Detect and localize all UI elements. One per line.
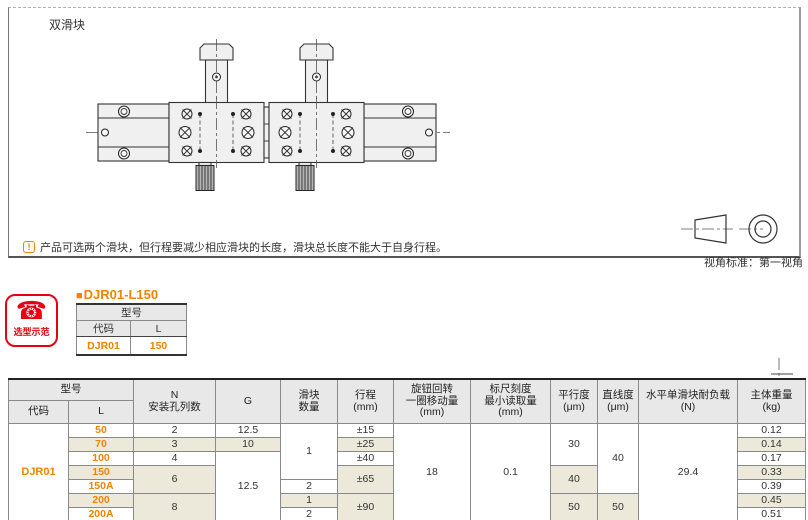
header-parallelism: 平行度(μm) bbox=[551, 379, 598, 424]
slider-block-2 bbox=[269, 97, 364, 168]
view-standard-label: 视角标准：第一视角 bbox=[651, 254, 803, 270]
table-row: DJR01 50 2 12.5 1 ±15 18 0.1 30 40 29.4 … bbox=[9, 424, 806, 438]
first-angle-projection-icon bbox=[651, 206, 803, 248]
header-g: G bbox=[216, 379, 281, 424]
header-knob-move: 旋钮回转一圈移动量(mm) bbox=[394, 379, 471, 424]
example-model-title: ■DJR01-L150 bbox=[76, 287, 158, 302]
example-l-value: 150 bbox=[131, 337, 187, 356]
col-header-code: 代码 bbox=[77, 321, 131, 337]
header-load: 水平单滑块耐负载(N) bbox=[639, 379, 738, 424]
slider-block-1 bbox=[169, 97, 264, 168]
header-straightness: 直线度(μm) bbox=[598, 379, 639, 424]
catalog-page: 双滑块 bbox=[0, 0, 808, 520]
note-text: 产品可选两个滑块，但行程要减少相应滑块的长度，滑块总长度不能大于自身行程。 bbox=[40, 239, 447, 255]
selection-example-badge: ☎ 选型示范 bbox=[5, 294, 58, 347]
header-scale-min: 标尺刻度最小读取量(mm) bbox=[471, 379, 551, 424]
dual-slider-technical-drawing bbox=[86, 39, 454, 199]
product-note: ! 产品可选两个滑块，但行程要减少相应滑块的长度，滑块总长度不能大于自身行程。 bbox=[23, 239, 447, 255]
scale-min-value: 0.1 bbox=[471, 424, 551, 520]
block-joint bbox=[264, 107, 269, 158]
variant-label: 双滑块 bbox=[49, 16, 85, 33]
example-model-table: 型号 代码 L DJR01 150 bbox=[76, 303, 187, 356]
header-model-group: 型号 bbox=[9, 379, 134, 401]
view-standard: 视角标准：第一视角 bbox=[651, 206, 803, 270]
rail-right bbox=[364, 104, 436, 161]
knurled-knob-bottom-1 bbox=[196, 163, 214, 191]
drawing-panel: 双滑块 bbox=[8, 7, 801, 258]
phone-icon: ☎ bbox=[7, 297, 56, 325]
crosshair-mark-icon bbox=[768, 358, 796, 378]
header-mount-hole-rows: N安装孔列数 bbox=[134, 379, 216, 424]
knob-move-value: 18 bbox=[394, 424, 471, 520]
header-stroke: 行程(mm) bbox=[338, 379, 394, 424]
col-header-l: L bbox=[131, 321, 187, 337]
header-code: 代码 bbox=[9, 401, 69, 424]
header-weight: 主体重量(kg) bbox=[738, 379, 806, 424]
warning-icon: ! bbox=[23, 241, 35, 253]
header-slider-count: 滑块数量 bbox=[281, 379, 338, 424]
example-code-value: DJR01 bbox=[77, 337, 131, 356]
load-value: 29.4 bbox=[639, 424, 738, 520]
header-l: L bbox=[69, 401, 134, 424]
spec-table: 型号 N安装孔列数 G 滑块数量 行程(mm) 旋钮回转一圈移动量(mm) 标尺… bbox=[8, 378, 806, 520]
rail-left bbox=[98, 104, 169, 161]
selection-example-label: 选型示范 bbox=[7, 325, 56, 338]
code-value: DJR01 bbox=[9, 424, 69, 520]
model-group-header: 型号 bbox=[77, 304, 187, 321]
square-bullet-icon: ■ bbox=[76, 290, 83, 302]
knurled-knob-bottom-2 bbox=[296, 163, 314, 191]
